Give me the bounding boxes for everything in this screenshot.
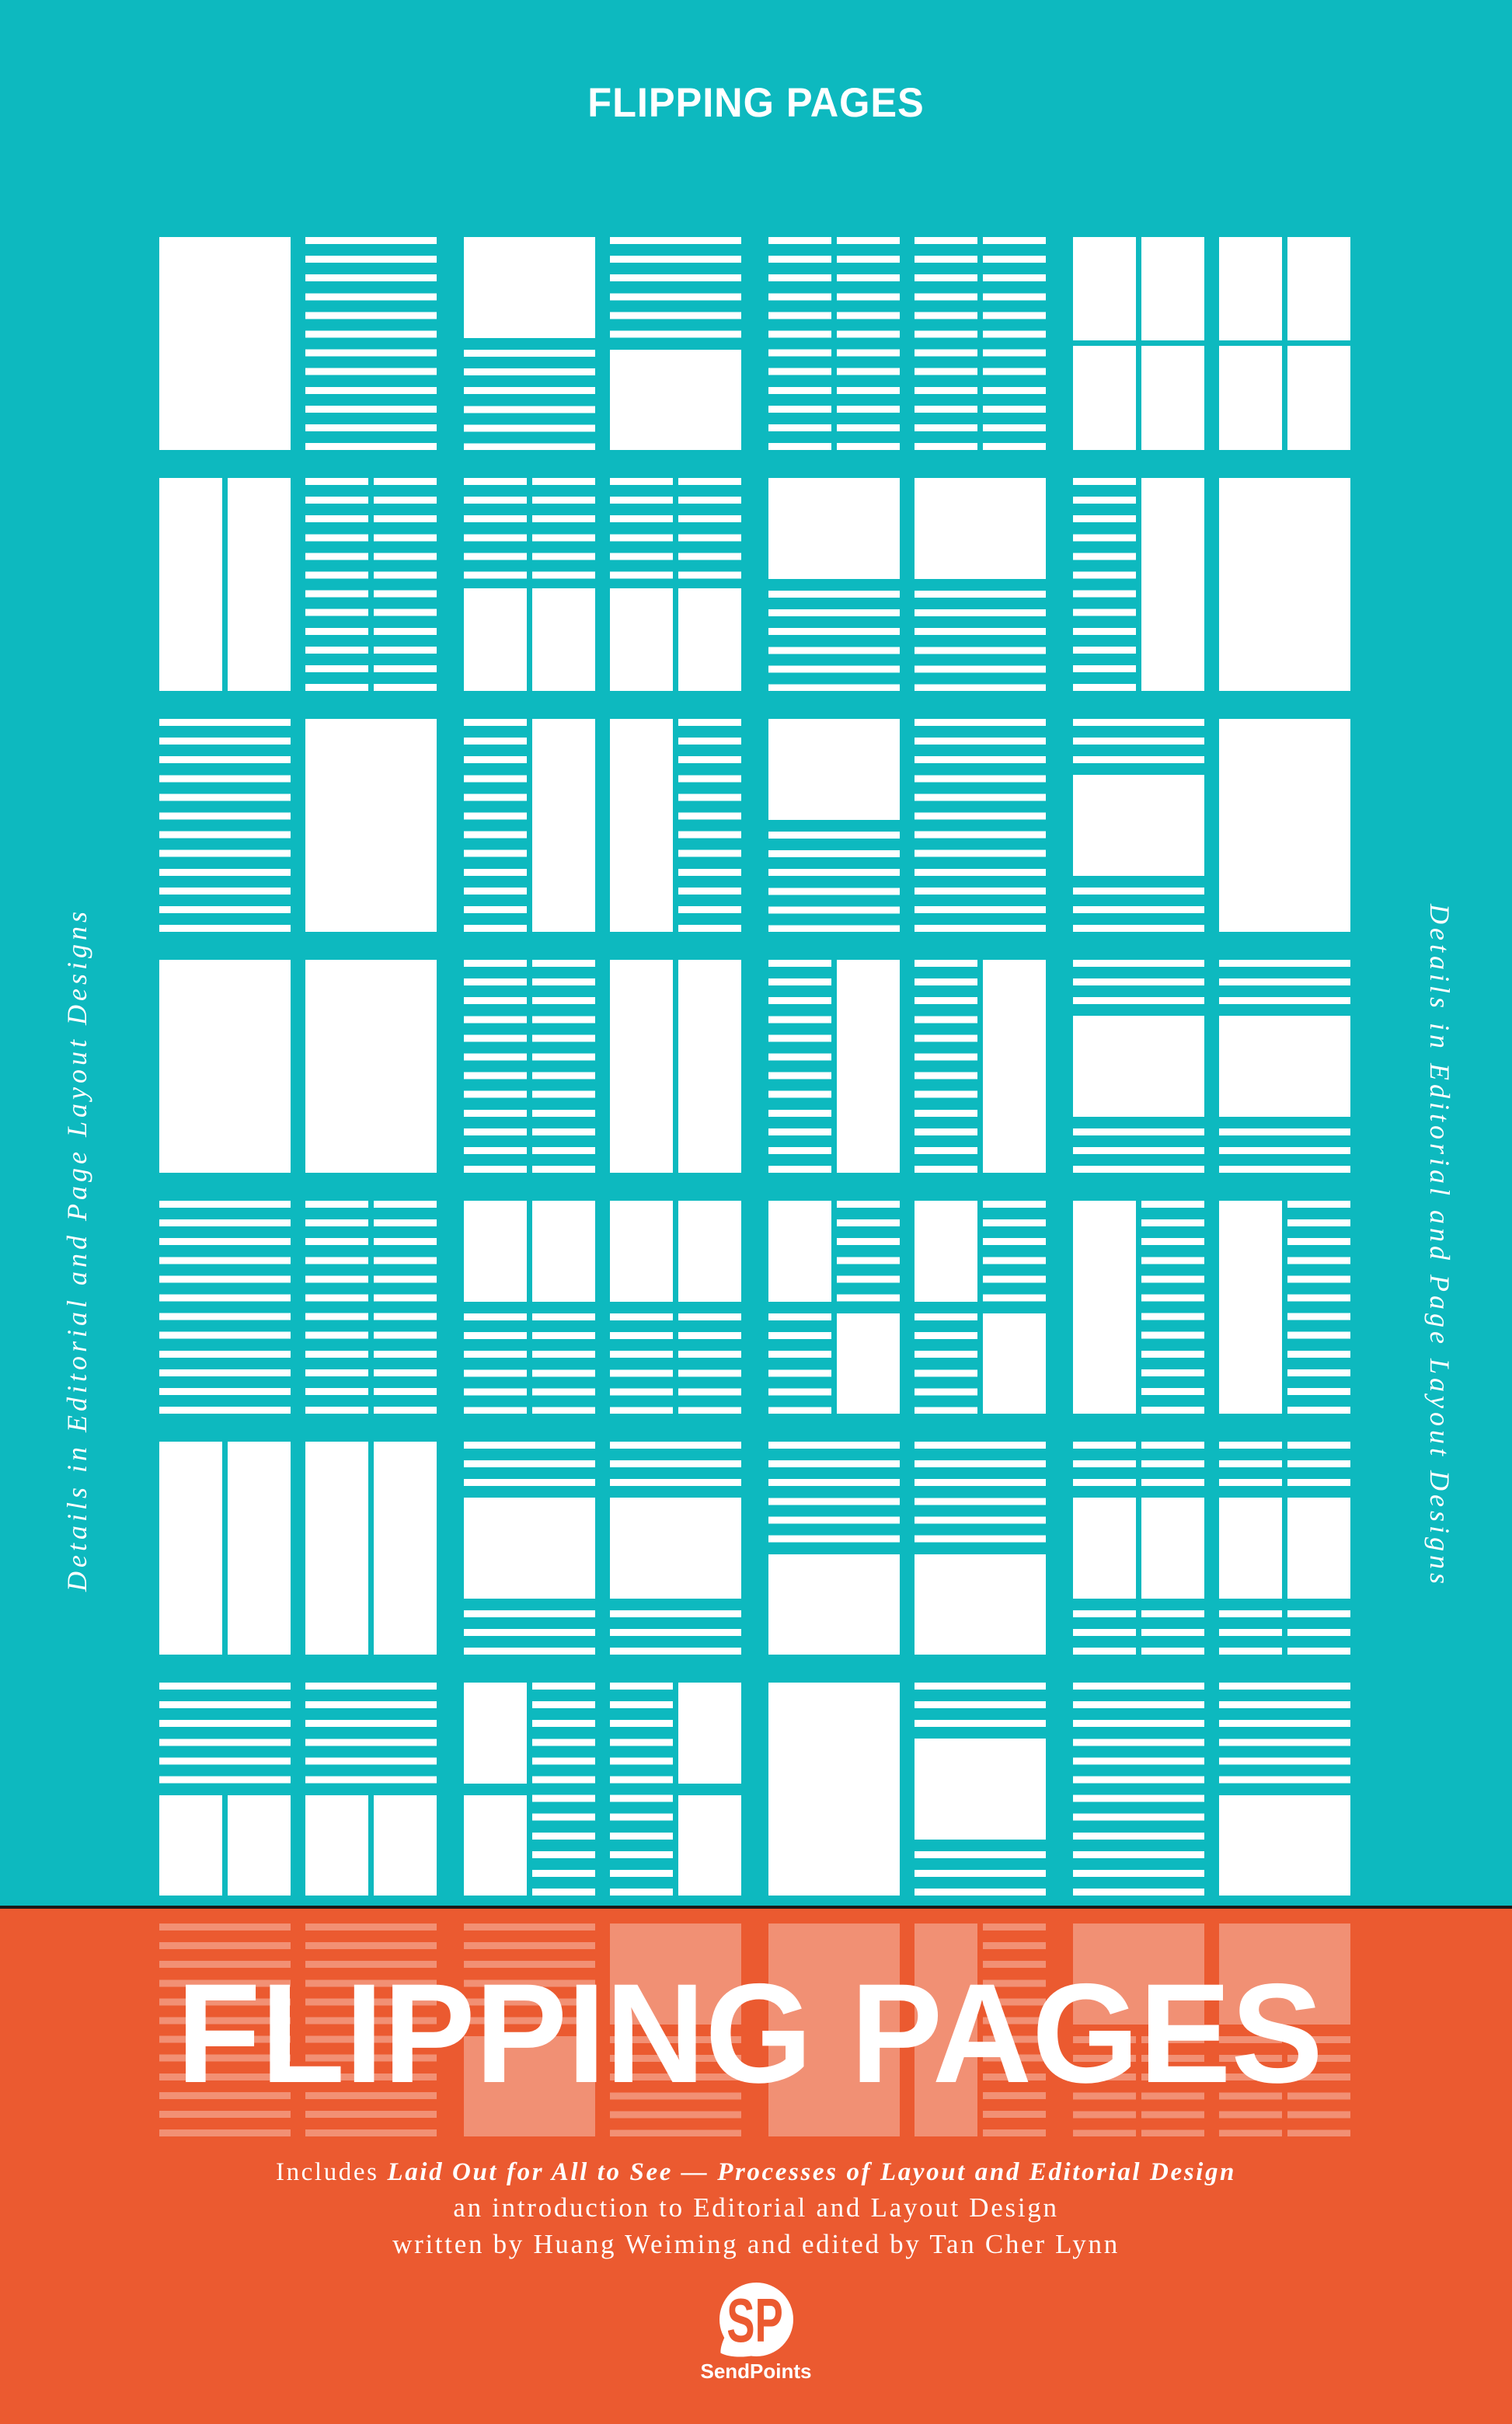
svg-text:SP: SP (726, 2286, 783, 2356)
